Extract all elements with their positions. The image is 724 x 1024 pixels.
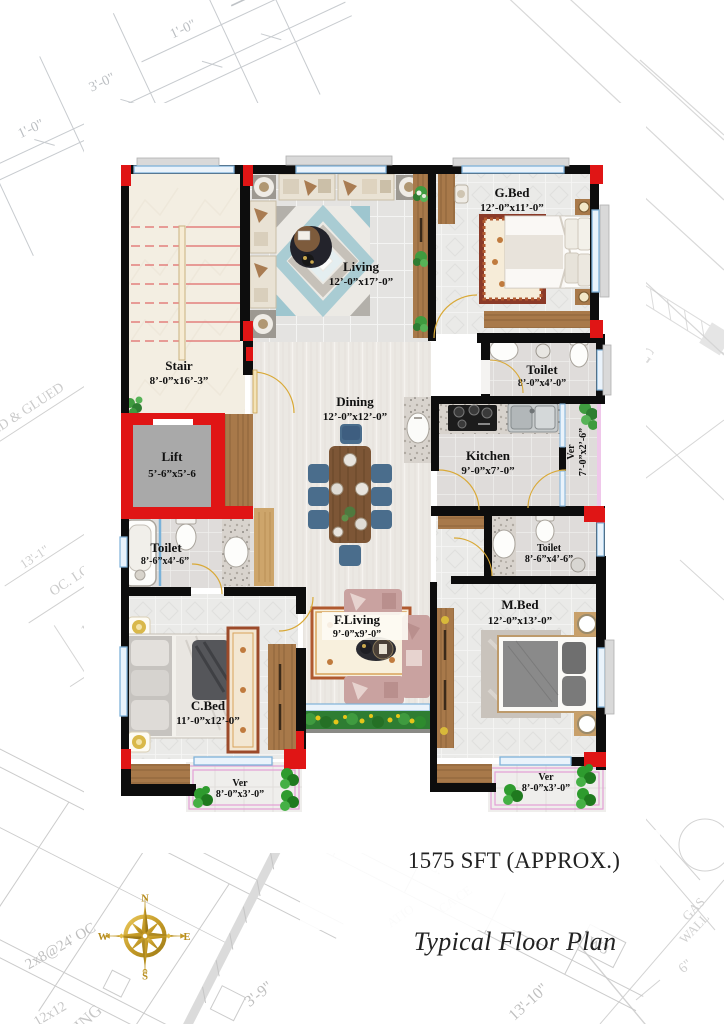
svg-text:Ver: Ver <box>232 778 248 789</box>
svg-text:E: E <box>183 932 190 943</box>
svg-text:8’-6”x4’-6”: 8’-6”x4’-6” <box>525 554 573 565</box>
svg-text:Ver: Ver <box>538 772 554 783</box>
svg-text:8’-0”x3’-0”: 8’-0”x3’-0” <box>522 783 570 794</box>
svg-text:Ver: Ver <box>566 444 577 460</box>
svg-text:Kitchen: Kitchen <box>466 448 511 463</box>
svg-text:S: S <box>142 972 148 983</box>
svg-text:C.Bed: C.Bed <box>191 698 226 713</box>
svg-text:1575 SFT (APPROX.): 1575 SFT (APPROX.) <box>408 848 620 873</box>
svg-text:F.Living: F.Living <box>334 612 381 627</box>
svg-text:11’-0”x12’-0”: 11’-0”x12’-0” <box>176 715 240 727</box>
svg-text:Stair: Stair <box>165 358 193 373</box>
svg-text:12’-0”x17’-0”: 12’-0”x17’-0” <box>329 276 393 288</box>
svg-text:G.Bed: G.Bed <box>494 185 530 200</box>
svg-text:12’-0”x12’-0”: 12’-0”x12’-0” <box>323 411 387 423</box>
svg-text:8’-0”x4’-0”: 8’-0”x4’-0” <box>518 378 566 389</box>
svg-text:W: W <box>98 932 109 943</box>
svg-text:9’-0”x9’-0”: 9’-0”x9’-0” <box>333 629 381 640</box>
svg-text:Living: Living <box>343 259 380 274</box>
svg-text:12’-0”x11’-0”: 12’-0”x11’-0” <box>480 202 544 214</box>
svg-text:8’-0”x3’-0”: 8’-0”x3’-0” <box>216 789 264 800</box>
svg-text:Dining: Dining <box>336 394 374 409</box>
svg-text:12’-0”x13’-0”: 12’-0”x13’-0” <box>488 615 552 627</box>
svg-text:Toilet: Toilet <box>150 540 182 555</box>
svg-text:N: N <box>141 894 149 905</box>
svg-text:Toilet: Toilet <box>537 543 562 554</box>
svg-text:M.Bed: M.Bed <box>501 597 539 612</box>
svg-text:5’-6”x5’-6: 5’-6”x5’-6 <box>148 468 196 480</box>
svg-text:Lift: Lift <box>162 449 184 464</box>
svg-text:8’-0”x16’-3”: 8’-0”x16’-3” <box>150 375 209 387</box>
svg-text:7’-0”x2’-6”: 7’-0”x2’-6” <box>578 428 589 476</box>
svg-text:Typical Floor Plan: Typical Floor Plan <box>414 927 617 956</box>
svg-text:Toilet: Toilet <box>526 362 558 377</box>
svg-text:9’-0”x7’-0”: 9’-0”x7’-0” <box>461 465 514 477</box>
svg-text:8’-6”x4’-6”: 8’-6”x4’-6” <box>141 556 189 567</box>
